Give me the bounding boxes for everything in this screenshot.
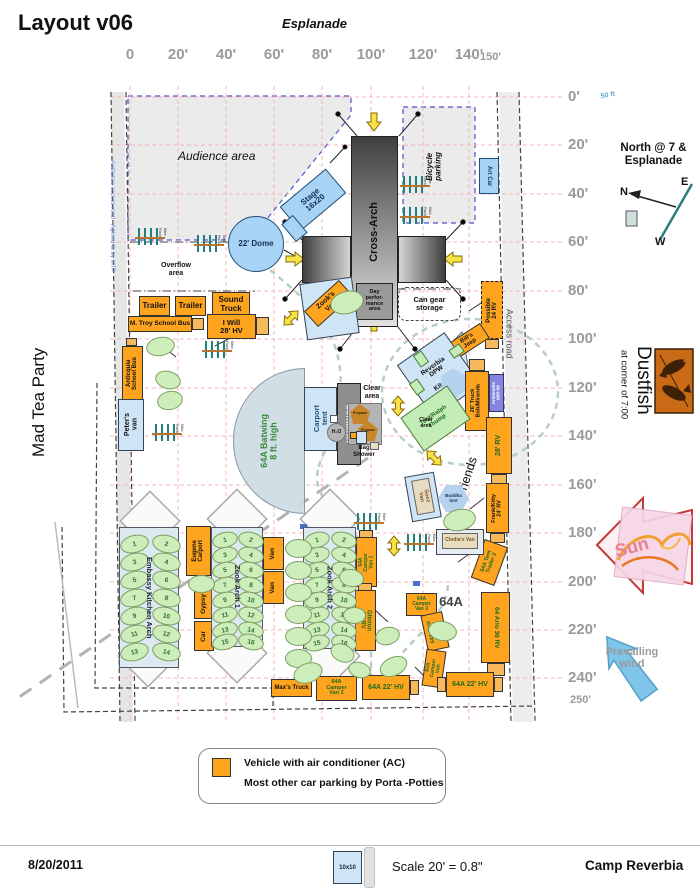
possible-rv-label: Possible 24 RV (486, 298, 498, 323)
van: Van (263, 537, 284, 570)
can-gear-storage-label: Can gear storage (413, 296, 445, 312)
stage-label: Stage 16x20 (299, 186, 327, 213)
van-label: Van (270, 548, 277, 560)
scale-bar (364, 847, 375, 888)
car-spot (373, 624, 402, 648)
map-item (469, 359, 485, 371)
ruler-top-tick: 100' (351, 46, 391, 63)
h2o: H₂O (327, 423, 346, 442)
legend-line2: Most other car parking by Porta -Potties (244, 777, 444, 789)
zook-arch-2-label: Zook Arch 2 (303, 527, 356, 649)
ruler-right-tick: 0' (568, 88, 608, 105)
access-road-label-label: Access road (504, 309, 513, 359)
car-label: Car (201, 631, 208, 642)
map-item (485, 339, 499, 349)
map-item (330, 415, 338, 423)
propane-label: Propane (353, 412, 367, 416)
ruler-right-tick: 160' (568, 476, 608, 493)
overflow-area-label: Overflow area (150, 262, 202, 277)
car-spot (153, 368, 183, 392)
ruler-top-tick: 20' (158, 46, 198, 63)
ruler-right-tick: 80' (568, 282, 608, 299)
school-bus-label: M. Troy School Bus (130, 321, 190, 328)
art-car-label: Art Car (486, 166, 492, 186)
dome: 22' Dome (228, 216, 284, 272)
car-spot (155, 389, 184, 413)
car-spot (145, 335, 177, 359)
maxs-truck-label: Max's Truck (274, 685, 308, 691)
hv-left: 64A 22' HV (362, 675, 410, 700)
ruler-right-tick: 180' (568, 524, 608, 541)
bike-rack-icon: Bike Rack (357, 513, 381, 530)
antoinette-label: Antoinette W/H 09 (492, 382, 501, 404)
ruler-top-tick: 150' (480, 51, 510, 63)
ruler-right-tick: 220' (568, 621, 608, 638)
camper-van-2: 64A Camper Van 2 (316, 676, 357, 701)
layout-page: Layout v06 Esplanade Mad Tea Party Dustf… (0, 0, 700, 896)
batwing-label: 64A Batwing 8 ft. high (260, 414, 279, 468)
map-item (359, 530, 373, 538)
ruler-top-tick: 120' (403, 46, 443, 63)
trailer: Trailer (175, 296, 206, 316)
legend-line1: Vehicle with air conditioner (AC) (244, 757, 405, 769)
bike-rack-icon: Bike Rack (155, 424, 179, 441)
sun-label: Sun (600, 531, 663, 566)
clear-area-label: Clear area (410, 417, 442, 429)
school-bus: M. Troy School Bus (128, 316, 192, 332)
van: Van (263, 571, 284, 604)
legend-ac-swatch (212, 758, 231, 777)
embassy-kitchen-arch-label: Embassy Kitchen Arch (119, 527, 179, 668)
footer-divider (0, 845, 700, 846)
frank-kitty-rv-label: Frank/Kitty 24' RV (492, 494, 503, 523)
ruler-right-tick: 40' (568, 185, 608, 202)
cross-arch-left (302, 236, 351, 283)
van-label: Van (270, 582, 277, 594)
bag-shower-label: Bag Shower (342, 445, 386, 458)
map-item (356, 431, 367, 444)
rv-28-label: 28' RV (495, 435, 502, 456)
map-item (437, 677, 446, 692)
map-item (494, 677, 503, 692)
sound-truck-label: Sound Truck (219, 296, 244, 313)
camper-van-1-label: 64A Camper Van 1 (359, 553, 375, 572)
footer-camp-name: Camp Reverbia (585, 858, 683, 873)
arlo-rv-label: 64 Arlo 36 RV (492, 607, 499, 649)
can-gear-storage: Can gear storage (398, 287, 461, 321)
bike-rack-icon: Bike Rack (197, 235, 221, 252)
hv-right-label: 64A 22' HV (452, 681, 488, 688)
dome-label: 22' Dome (238, 240, 273, 248)
trailer-label: Trailer (142, 302, 166, 310)
frank-kitty-rv: Frank/Kitty 24' RV (486, 483, 509, 533)
day-performance-area-label: Day perfor- mance area (366, 290, 384, 313)
ruler-right-tick: 120' (568, 379, 608, 396)
clodias-van: Clodia's Van (442, 533, 478, 549)
ruler-top-tick: 40' (206, 46, 246, 63)
ruler-right-tick: 250' (570, 694, 600, 706)
ruler-top-tick: 60' (254, 46, 294, 63)
footer-scale: Scale 20' = 0.8" (392, 860, 483, 874)
eugene-carport: Eugene Carport (186, 526, 211, 576)
carport-tent-label: Carport tent (313, 405, 329, 432)
zook-arch-1-label: Zook Arch 1 (211, 527, 263, 647)
legend-box: Vehicle with air conditioner (AC) Most o… (198, 748, 446, 804)
buddha-tent-label: Buddha tent (445, 494, 462, 503)
arlo-rv: 64 Arlo 36 RV (481, 592, 510, 663)
footer-date: 8/20/2011 (28, 858, 83, 872)
i-will-hv-label: I Will 28' HV (220, 319, 243, 335)
clear-area-label: Clear area (352, 385, 392, 400)
map-item (350, 432, 357, 439)
map-item (256, 317, 269, 335)
ruler-right-tick: 20' (568, 136, 608, 153)
bike-rack-icon: Bike Rack (403, 176, 427, 193)
area-64a-label: 64A (436, 595, 466, 609)
map-item (192, 318, 204, 330)
map-item (126, 338, 137, 346)
bike-rack-icon: Bike Rack (407, 534, 431, 551)
audience-access-road-label: Audience access road - Agreed to by MTP (104, 96, 120, 336)
camper-van-3-label: 64A Camper Van 3 (412, 597, 431, 613)
hv-right: 64A 22' HV (446, 672, 494, 697)
prevailing-wind-label: Prevailing wind (594, 646, 670, 670)
trailer: Trailer (139, 296, 170, 316)
ruler-right-tick: 200' (568, 573, 608, 590)
antoinette: Antoinette W/H 09 (489, 374, 504, 412)
tent-10x10-icon: 10x10 (333, 851, 362, 884)
ruler-top-tick: 0 (110, 46, 150, 63)
peters-van-label: Peter's van (124, 413, 139, 436)
bike-rack-icon: Bike Rack (205, 341, 229, 358)
truck-26-label: 26' Truck Bob/Miranda (471, 384, 482, 417)
camper-van-2-label: 64A Camper Van 2 (326, 680, 346, 697)
hv-left-label: 64A 22' HV (368, 684, 404, 691)
ruler-right-tick: 240' (568, 669, 608, 686)
sooz-van-label: Sooz Van (416, 489, 430, 504)
eugene-carport-label: Eugene Carport (192, 540, 204, 562)
ruler-top-tick: 80' (302, 46, 342, 63)
i-will-hv: I Will 28' HV (207, 314, 256, 339)
peters-van: Peter's van (118, 399, 144, 451)
art-car: Art Car (479, 158, 499, 194)
trailer-label: Trailer (178, 302, 202, 310)
h2o-label: H₂O (332, 430, 342, 435)
ruler-right-tick: 140' (568, 427, 608, 444)
clodias-van-label: Clodia's Van (445, 538, 475, 543)
audience-area-label: Audience area (178, 150, 255, 163)
anticquia-school-bus-label: Anticquia School Bus (126, 357, 138, 390)
bike-rack-icon: Bike Rack (403, 207, 427, 224)
ruler-right-tick: 100' (568, 330, 608, 347)
anticquia-school-bus: Anticquia School Bus (122, 346, 143, 401)
batwing: 64A Batwing 8 ft. high (233, 368, 305, 514)
ruler-right-tick: 60' (568, 233, 608, 250)
cross-arch-right (398, 236, 446, 283)
rv-28: 28' RV (486, 417, 512, 474)
map-item (410, 680, 419, 695)
audience-access-road-label-label: Audience access road - Agreed to by MTP (109, 160, 115, 272)
bike-rack-icon: Bike Rack (138, 228, 162, 245)
camper-van-label: 64A Camper Van (425, 658, 443, 679)
cross-arch-label: Cross-Arch (369, 202, 380, 262)
gypsy-label: Gypsy (201, 594, 208, 614)
